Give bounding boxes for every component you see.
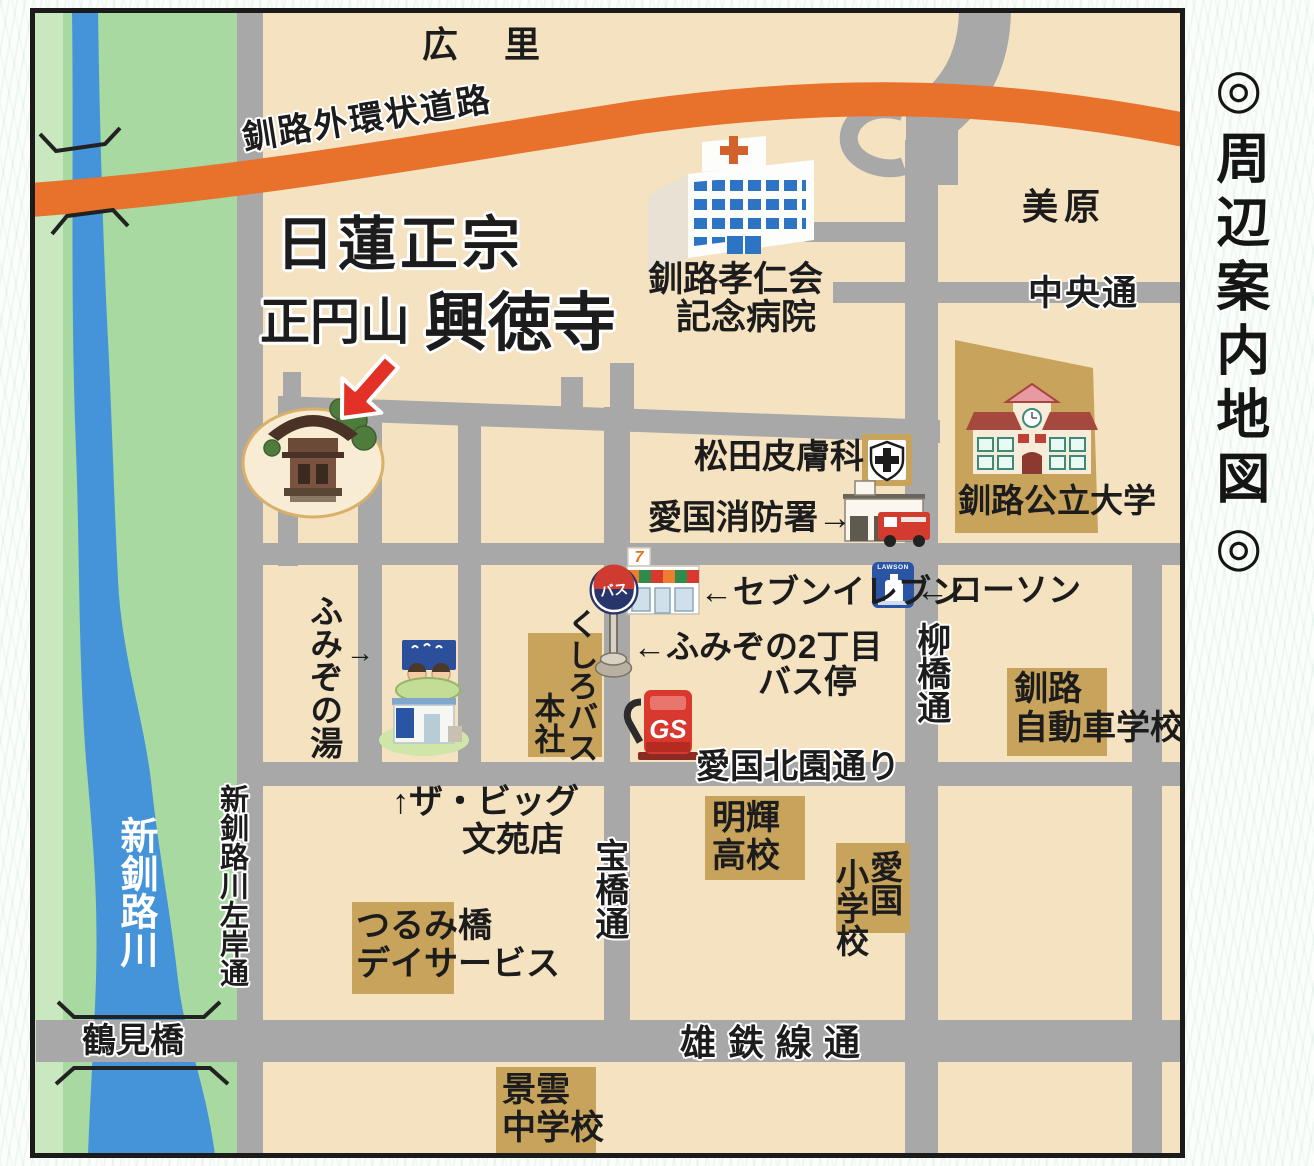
bus-stop-label-2: バス停 [758,665,857,700]
seven-logo-badge: 7 [630,550,648,567]
road-label-sagan: 新釧路川左岸通 [216,784,246,987]
onsen-label: ふみぞの湯 [306,594,341,759]
bus-stop-label-1: ←ふみぞの2丁目 [633,630,882,665]
temple-title-mountain: 正円山 [260,292,410,351]
temple-title-sect: 日蓮正宗 [276,214,524,275]
keiun-label-2: 中学校 [502,1111,604,1147]
meiki-label-1: 明輝 [712,801,780,837]
university-label: 釧路公立大学 [958,484,1156,519]
driving-school-label-1: 釧路 [1014,672,1082,708]
tsurumi-day-label-1: つるみ橋 [356,909,492,945]
river-label: 新釧路川 [114,816,154,968]
aikoku-label-1: 愛国 [866,850,901,916]
road-label-takarabashi: 宝橋通 [590,838,626,940]
keiun-label-1: 景雲 [502,1073,570,1109]
lawson-sign-badge: LAWSON [872,565,914,572]
temple-title-name: 興徳寺 [424,286,616,361]
guide-map-page: 広 里 釧路外環状道路 日蓮正宗 正円山興徳寺 釧路孝仁会 記念病院 美原 中央… [0,0,1314,1166]
temple-title-line2: 正円山興徳寺 [260,290,616,357]
driving-school-label-2: 自動車学校 [1014,711,1184,747]
hospital-label-1: 釧路孝仁会 [648,262,823,299]
tsurumi-day-label-2: デイサービス [356,947,560,983]
clinic-cross-icon [868,440,906,480]
matsuda-clinic-label: 松田皮膚科 [694,440,864,476]
hospital-label-2: 記念病院 [676,300,816,337]
road-label-yutetsu: 雄鉄線通 [680,1024,872,1062]
big-store-label-1: ↑ザ・ビッグ [392,785,579,821]
bus-hq-label-1: くしろバス [563,608,596,763]
bridge-label-tsurumibashi: 鶴見橋 [82,1024,184,1060]
big-store-label-2: 文苑店 [462,823,564,859]
area-label-mihara: 美原 [1022,188,1106,226]
gs-badge: GS [646,716,690,743]
onsen-arrow: → [346,638,374,667]
aikoku-label-2: 小学校 [832,858,867,957]
meiki-label-2: 高校 [712,839,780,875]
page-title: ◎周辺案内地図◎ [1210,56,1267,588]
fire-station-label: 愛国消防署→ [648,501,852,537]
lawson-label: ←ローソン [916,573,1081,608]
area-label-hirosato: 広 里 [422,26,558,64]
base-map [0,0,1314,1166]
road-label-chuo: 中央通 [1028,276,1139,313]
road-label-yanagibashi: 柳橋通 [912,622,948,724]
road-label-kitazono: 愛国北園通り [696,750,900,786]
bus-hq-label-2: 本社 [530,692,563,754]
